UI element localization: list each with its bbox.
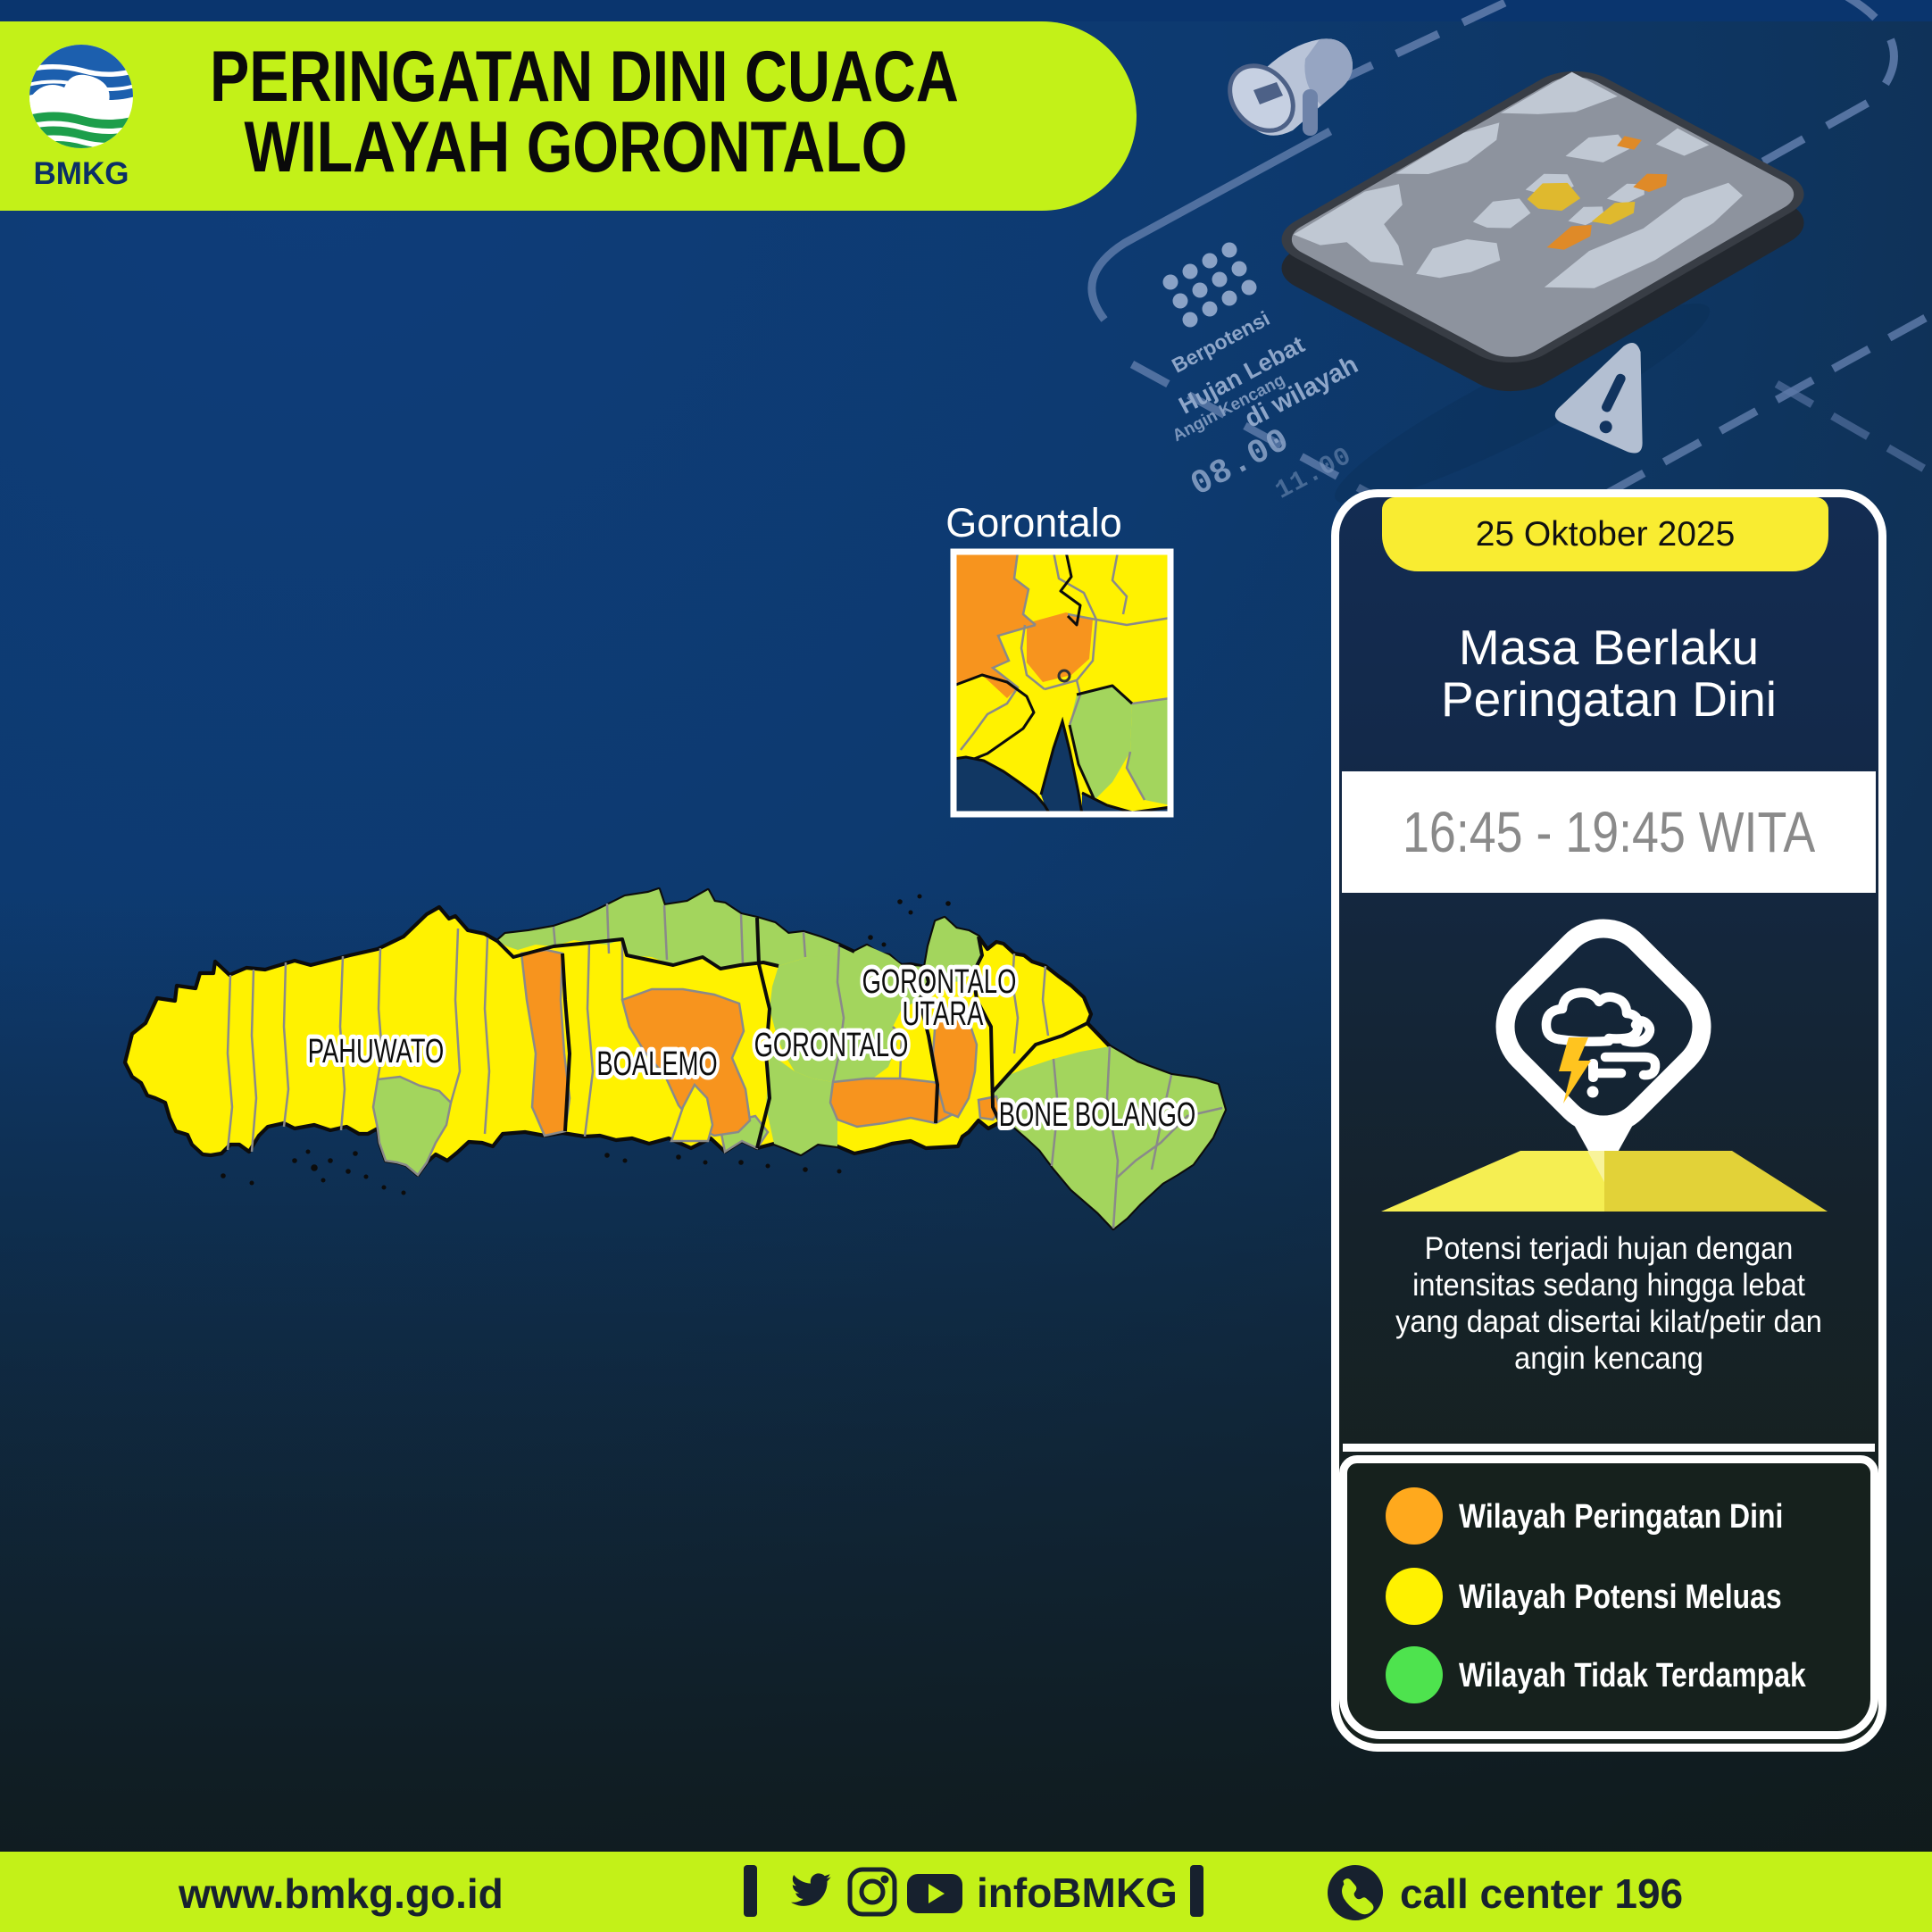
svg-text:infoBMKG: infoBMKG — [977, 1870, 1178, 1916]
svg-text:PAHUWATO: PAHUWATO — [308, 1033, 445, 1070]
svg-text:GORONTALO: GORONTALO — [754, 1027, 909, 1064]
svg-text:UTARA: UTARA — [903, 995, 984, 1033]
svg-text:BOALEMO: BOALEMO — [596, 1045, 717, 1083]
svg-text:BMKG: BMKG — [34, 156, 129, 191]
svg-text:BONE BOLANGO: BONE BOLANGO — [999, 1096, 1195, 1134]
